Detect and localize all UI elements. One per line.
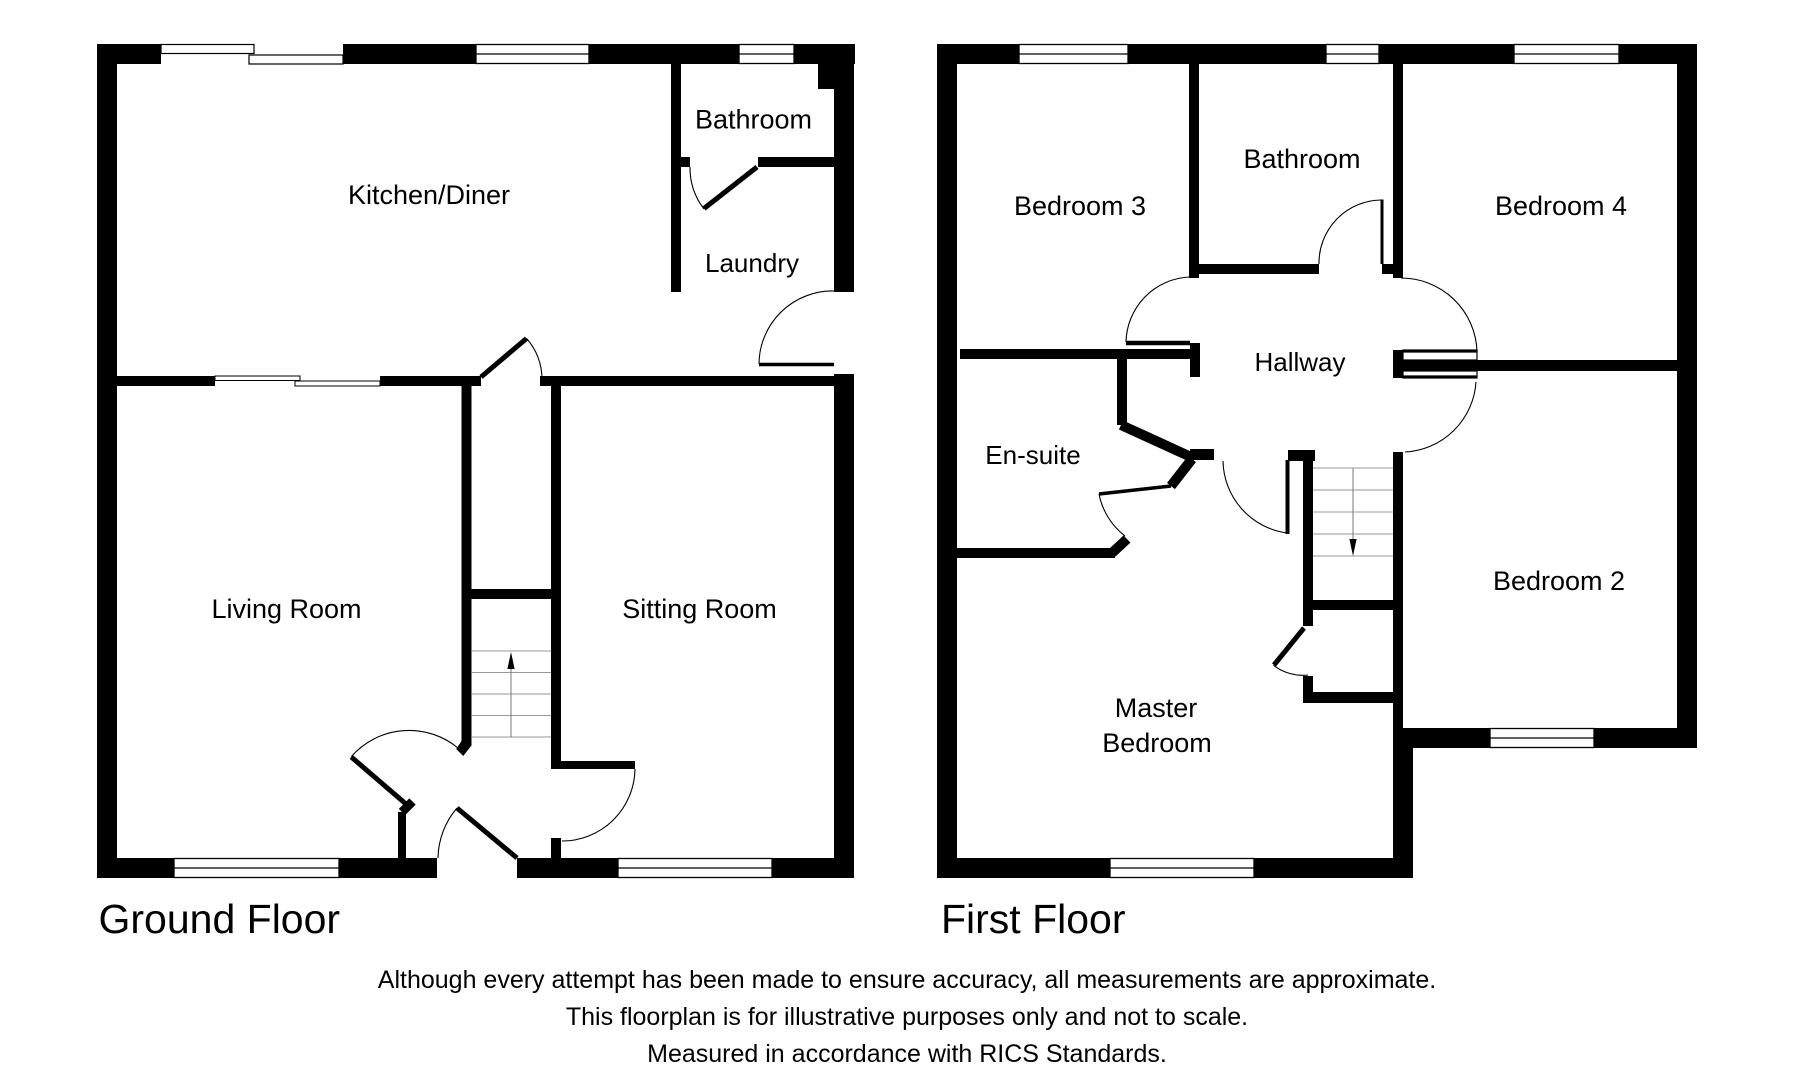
svg-text:Kitchen/Diner: Kitchen/Diner [348,180,510,210]
svg-text:Bedroom 3: Bedroom 3 [1014,191,1146,221]
svg-text:Bathroom: Bathroom [1243,144,1360,174]
svg-text:Although every attempt has bee: Although every attempt has been made to … [378,966,1436,994]
svg-text:Hallway: Hallway [1254,347,1345,377]
svg-text:Bathroom: Bathroom [695,105,812,135]
svg-text:Bedroom 2: Bedroom 2 [1493,566,1625,596]
svg-text:Laundry: Laundry [705,248,799,278]
svg-text:Master: Master [1115,693,1198,723]
svg-text:En-suite: En-suite [985,440,1080,470]
svg-text:Ground Floor: Ground Floor [99,896,341,942]
svg-text:Bedroom: Bedroom [1102,728,1212,758]
svg-text:Measured in accordance with RI: Measured in accordance with RICS Standar… [647,1040,1167,1068]
svg-text:This floorplan is for illustra: This floorplan is for illustrative purpo… [566,1003,1248,1031]
svg-text:First Floor: First Floor [941,896,1126,942]
svg-text:Sitting Room: Sitting Room [622,594,777,624]
svg-text:Bedroom 4: Bedroom 4 [1495,191,1627,221]
svg-text:Living Room: Living Room [211,594,361,624]
